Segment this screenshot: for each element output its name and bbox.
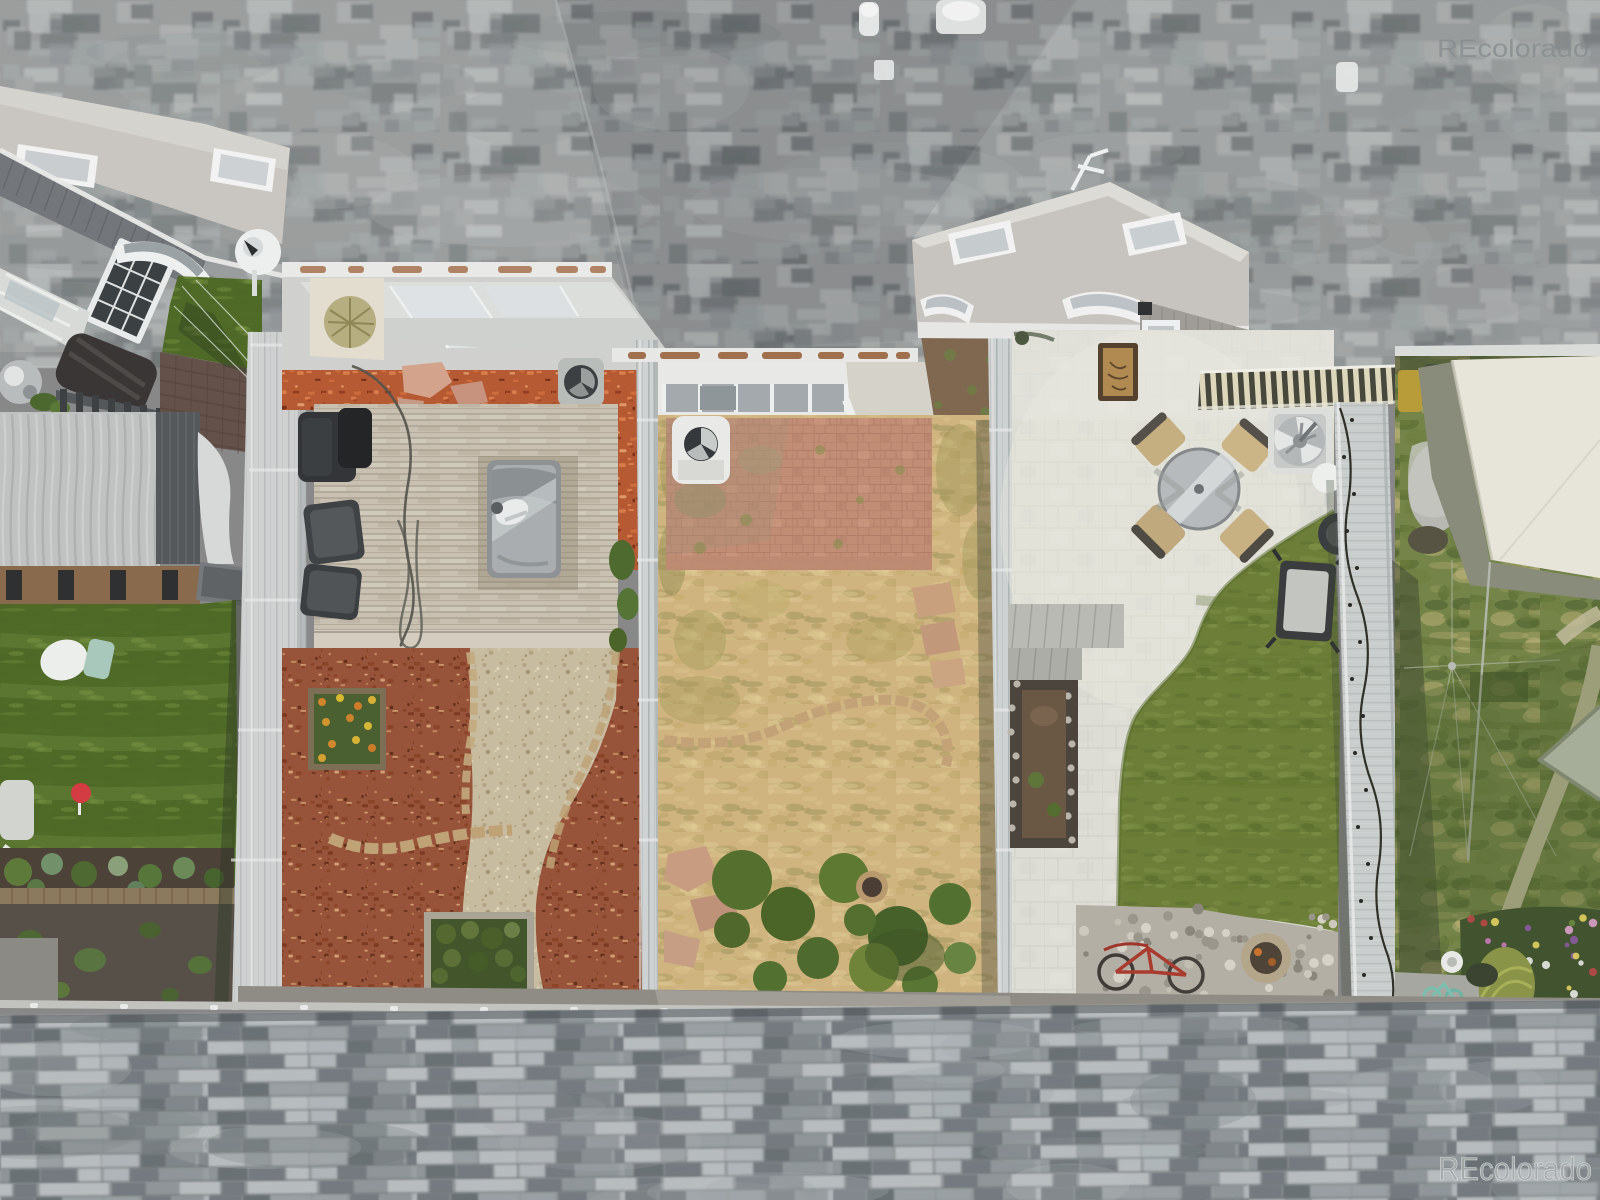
svg-text:REcolorado: REcolorado: [1437, 35, 1589, 63]
svg-text:REcolorado: REcolorado: [1438, 1151, 1592, 1187]
